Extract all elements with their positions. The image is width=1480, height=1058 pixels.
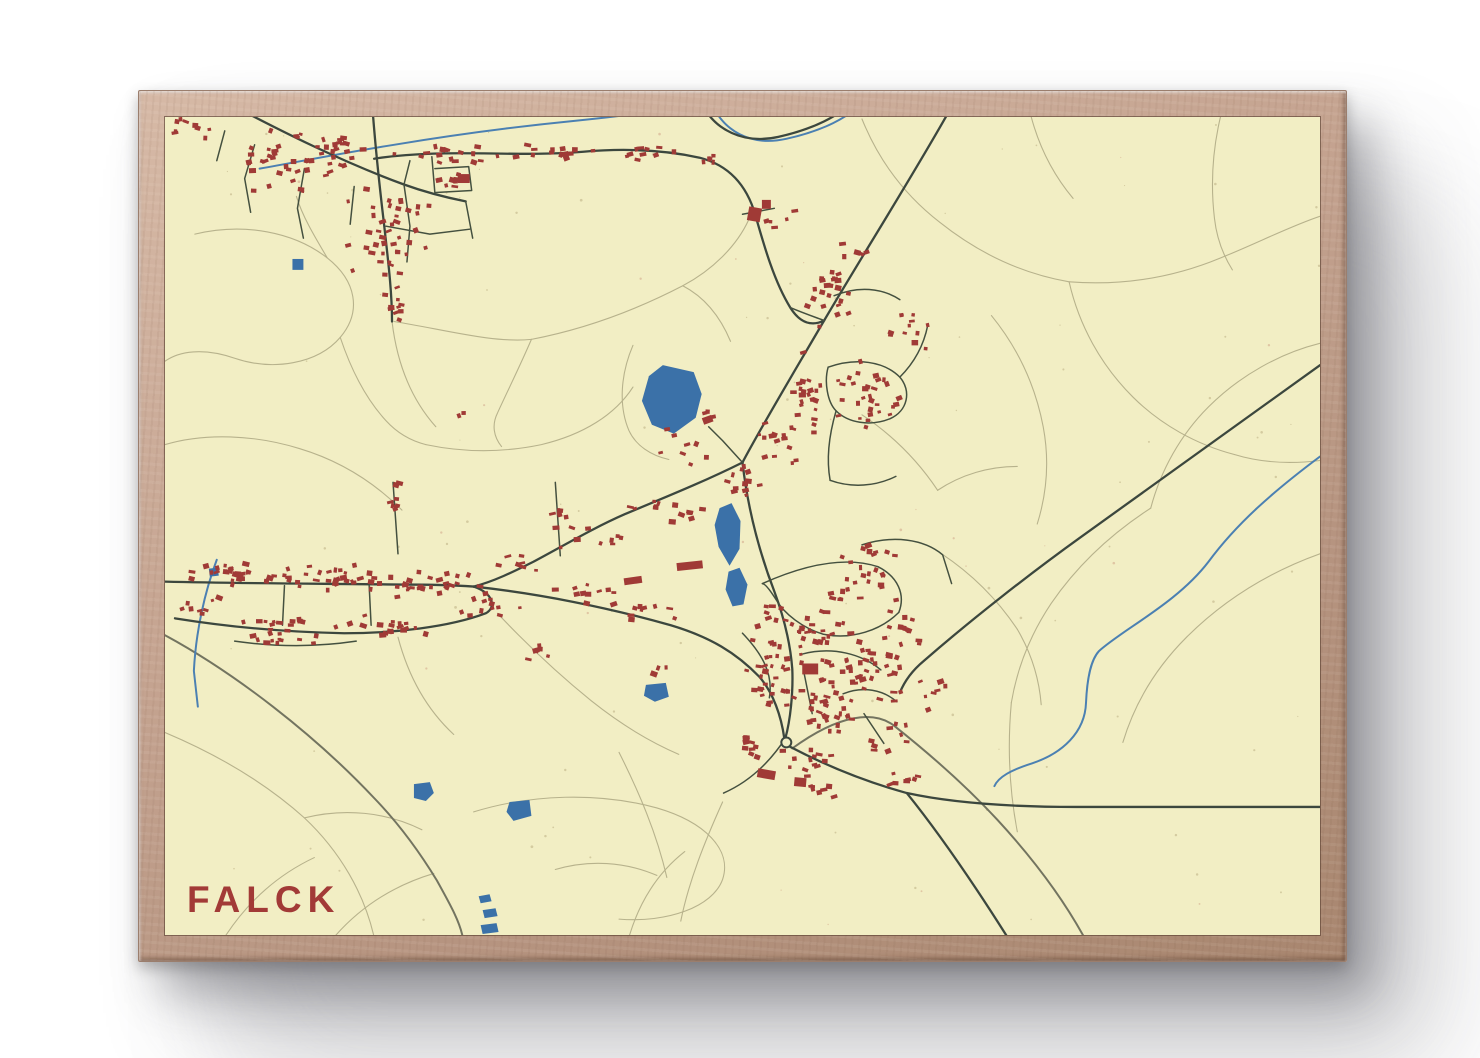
poster-photo: FALCK — [0, 0, 1480, 1058]
map-poster: FALCK — [165, 117, 1320, 935]
map-canvas — [165, 117, 1320, 935]
roundabout — [781, 737, 791, 747]
map-title: FALCK — [187, 879, 340, 921]
poster-frame: FALCK — [138, 90, 1347, 962]
